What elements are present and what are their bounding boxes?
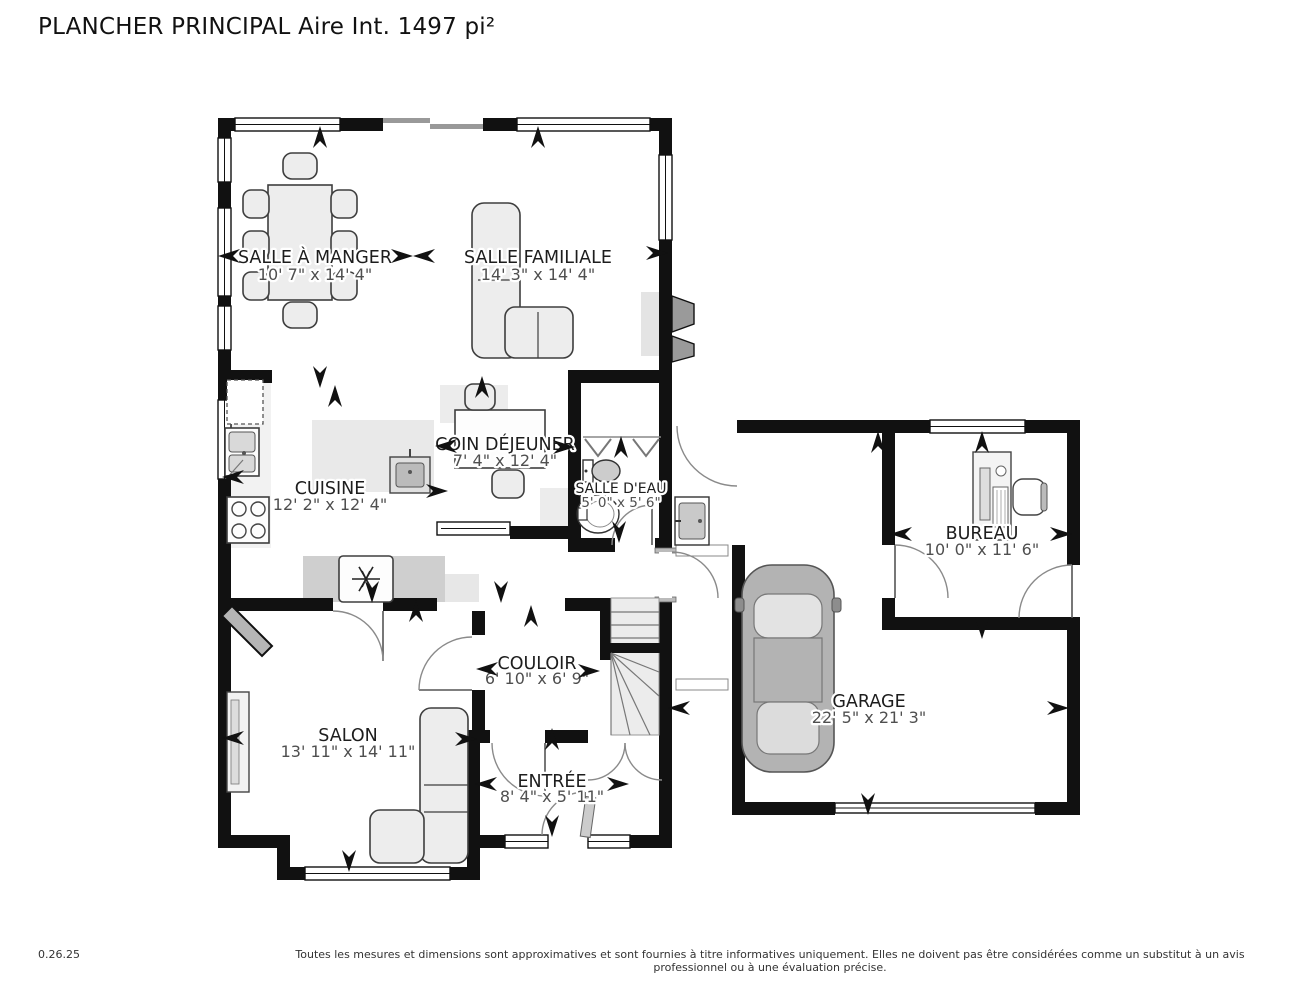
office-chair [1013, 479, 1047, 515]
stair-wall [603, 643, 661, 653]
wall-segment [467, 835, 480, 880]
wall-segment [568, 383, 581, 552]
dining-chair [243, 190, 269, 218]
disclaimer: Toutes les mesures et dimensions sont ap… [280, 948, 1260, 974]
car-roof [754, 638, 822, 702]
room-dims-salle-a-manger: 10' 7" x 14' 4" [258, 265, 372, 284]
hearth [641, 292, 659, 356]
measure-arrow-icon [614, 436, 628, 458]
wall-segment [472, 730, 490, 743]
staircase [603, 598, 661, 735]
dining-table-set [243, 153, 357, 328]
window [588, 835, 630, 848]
room-dims-cuisine: 12' 2" x 12' 4" [273, 495, 387, 514]
car [735, 565, 841, 772]
room-dims-entree: 8' 4" x 5' 11" [500, 787, 604, 806]
car-mirror [832, 598, 841, 612]
wall-segment [1067, 618, 1080, 815]
wall-segment [472, 611, 485, 635]
wall-segment [737, 420, 930, 433]
measure-arrow-icon [313, 366, 327, 388]
door-swing [672, 552, 718, 598]
door-swing [677, 426, 737, 486]
door-swing [419, 637, 472, 690]
step [676, 679, 728, 690]
measure-arrow-icon [975, 431, 989, 453]
wall-segment [480, 835, 505, 848]
floor-plan-container: SALLE À MANGER 10' 7" x 14' 4" SALLE FAM… [0, 0, 1295, 1000]
wall-segment [568, 370, 672, 383]
wall-segment [1035, 802, 1080, 815]
wall-segment [483, 118, 517, 131]
keyboard [993, 487, 1008, 527]
hanger-icon [633, 439, 659, 456]
measure-arrow-icon [413, 249, 435, 263]
stair-run [611, 598, 659, 735]
wall-segment [467, 730, 480, 835]
step [676, 545, 728, 556]
room-dims-salon: 13' 11" x 14' 11" [281, 742, 416, 761]
measure-arrow-icon [391, 249, 413, 263]
window [305, 867, 450, 880]
window [659, 155, 672, 240]
windshield [754, 594, 822, 638]
stove [227, 497, 269, 543]
wall-segment [218, 835, 290, 848]
wall-segment [662, 730, 672, 743]
window [218, 208, 231, 296]
wall-segment [510, 526, 568, 539]
room-dims-couloir: 6' 10" x 6' 9" [485, 669, 589, 688]
door-opening [659, 552, 672, 598]
fireplace-chimney [672, 296, 694, 332]
dining-chair [283, 302, 317, 328]
window [235, 118, 340, 131]
measure-arrow-icon [607, 777, 629, 791]
car-mirror [735, 598, 744, 612]
measure-arrow-icon [545, 815, 559, 837]
measure-arrow-icon [494, 581, 508, 603]
window [218, 306, 231, 350]
wall-segment [732, 802, 835, 815]
version-label: 0.26.25 [38, 948, 80, 961]
cased-opening [437, 522, 510, 535]
counter-ext [445, 574, 479, 602]
room-dims-bureau: 10' 0" x 11' 6" [925, 540, 1039, 559]
refrigerator [339, 556, 393, 602]
wall-segment [882, 598, 895, 617]
wall-segment [340, 118, 383, 131]
measure-arrow-icon [524, 605, 538, 627]
wall-segment [472, 690, 485, 730]
hanger-icon [585, 439, 611, 456]
fireplace-chimney [672, 336, 694, 362]
toilet [583, 460, 620, 482]
dining-chair [331, 190, 357, 218]
room-dims-garage: 22' 5" x 21' 3" [812, 708, 926, 727]
kitchen-sink [225, 428, 259, 478]
closet-double-doors [588, 743, 662, 780]
dishwasher [227, 380, 263, 424]
room-dims-coin-dejeuner: 7' 4" x 12' 4" [453, 451, 557, 470]
wall-segment [568, 538, 615, 552]
door-swing [1019, 565, 1072, 618]
dining-chair [283, 153, 317, 179]
utility-sink [675, 497, 709, 545]
rear-window [757, 702, 819, 754]
salon-sofa [370, 708, 468, 863]
window [930, 420, 1025, 433]
deck-edge [383, 118, 430, 123]
measure-arrow-icon [1047, 701, 1069, 715]
deck-edge [430, 124, 483, 129]
window [505, 835, 548, 848]
breakfast-chair [492, 470, 524, 498]
room-dims-salle-deau: 5' 0" x 5' 6" [581, 495, 660, 511]
window [517, 118, 650, 131]
window [218, 138, 231, 182]
fireplace [672, 296, 694, 362]
floor-plan: SALLE À MANGER 10' 7" x 14' 4" SALLE FAM… [0, 0, 1295, 1000]
wall-segment [1067, 420, 1080, 565]
door-swing [333, 611, 383, 661]
room-dims-salle-familiale: 14' 3" x 14' 4" [481, 265, 595, 284]
measure-arrow-icon [328, 385, 342, 407]
